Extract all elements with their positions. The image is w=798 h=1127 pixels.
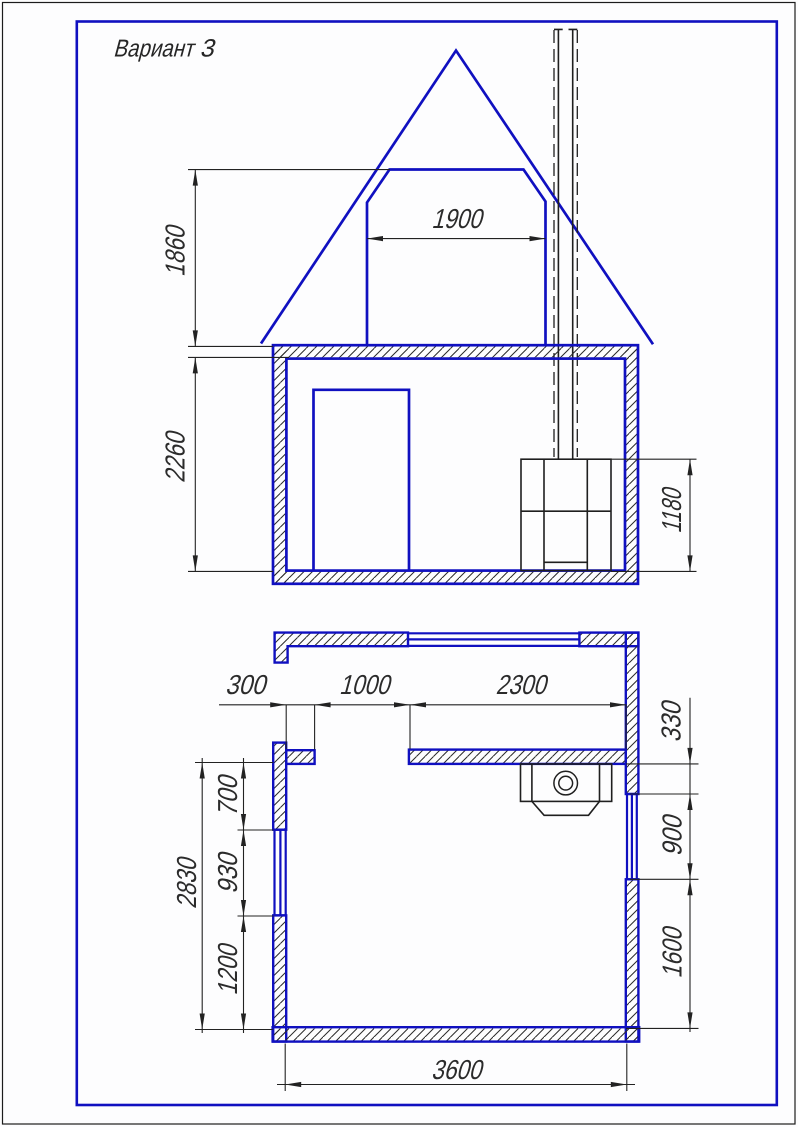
svg-text:1200: 1200	[213, 939, 243, 997]
svg-text:3600: 3600	[429, 1054, 487, 1084]
svg-text:Вариант: Вариант	[111, 35, 198, 63]
svg-text:1600: 1600	[657, 922, 687, 980]
svg-text:2300: 2300	[494, 669, 552, 699]
svg-text:2830: 2830	[171, 852, 201, 910]
svg-text:1900: 1900	[430, 203, 488, 233]
svg-text:900: 900	[657, 810, 687, 858]
svg-text:300: 300	[223, 669, 271, 699]
svg-text:1000: 1000	[337, 669, 395, 699]
svg-text:330: 330	[656, 696, 686, 744]
svg-text:1180: 1180	[656, 483, 686, 535]
svg-text:930: 930	[213, 847, 243, 895]
svg-text:2260: 2260	[160, 426, 190, 484]
svg-text:1860: 1860	[160, 220, 190, 278]
svg-text:700: 700	[213, 770, 243, 818]
